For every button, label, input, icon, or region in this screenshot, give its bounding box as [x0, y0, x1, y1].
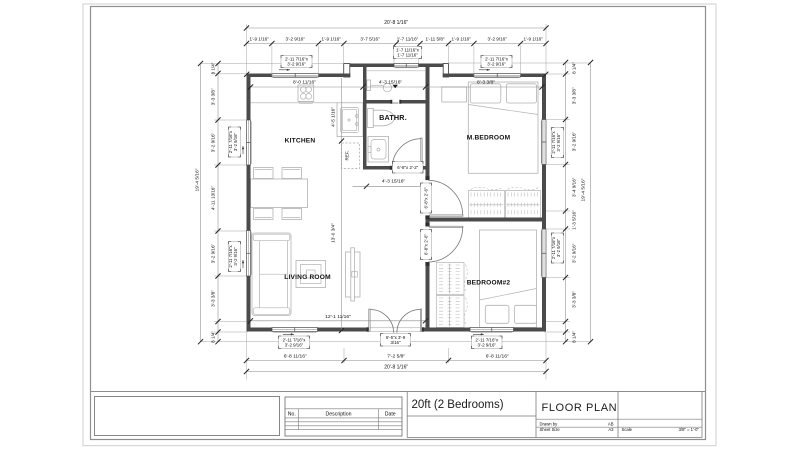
- svg-text:19'-4 5/16": 19'-4 5/16": [581, 178, 587, 201]
- svg-text:8 1/4": 8 1/4": [572, 62, 577, 74]
- svg-text:BATHR.: BATHR.: [379, 113, 407, 122]
- svg-text:A3: A3: [608, 427, 614, 432]
- svg-text:3'-3 3/8": 3'-3 3/8": [572, 87, 577, 104]
- svg-text:3'-2 9/16": 3'-2 9/16": [477, 342, 496, 347]
- svg-text:4'-3 15/16": 4'-3 15/16": [379, 79, 403, 85]
- svg-text:3'-2 9/16": 3'-2 9/16": [487, 62, 506, 67]
- svg-text:BEDROOM#2: BEDROOM#2: [467, 280, 511, 287]
- svg-text:3'-2 9/16": 3'-2 9/16": [233, 247, 238, 266]
- svg-text:8 1/4": 8 1/4": [210, 331, 215, 343]
- svg-text:4'-11 13/16": 4'-11 13/16": [210, 186, 215, 211]
- svg-text:KITCHEN: KITCHEN: [285, 138, 316, 145]
- svg-text:8'-3 3/8": 8'-3 3/8": [477, 79, 495, 85]
- svg-text:12'-1 11/16": 12'-1 11/16": [325, 314, 351, 320]
- svg-text:13'-0 3/4": 13'-0 3/4": [330, 223, 335, 243]
- svg-text:M.BEDROOM: M.BEDROOM: [467, 135, 511, 142]
- svg-text:3'-2 9/16": 3'-2 9/16": [556, 238, 561, 257]
- svg-text:3'-4 9/16": 3'-4 9/16": [572, 177, 577, 197]
- svg-text:Sheet Size: Sheet Size: [540, 427, 561, 432]
- svg-text:3'-2 9/16": 3'-2 9/16": [488, 36, 508, 41]
- svg-text:3'-2 9/16": 3'-2 9/16": [233, 132, 238, 151]
- svg-text:LIVING ROOM: LIVING ROOM: [284, 274, 331, 281]
- svg-text:Drawn by: Drawn by: [540, 422, 559, 427]
- svg-text:8'-0 11/16": 8'-0 11/16": [293, 79, 316, 85]
- svg-text:20'-8 1/16": 20'-8 1/16": [384, 20, 408, 26]
- svg-text:1'-3 5/16": 1'-3 5/16": [572, 210, 577, 230]
- svg-text:3'-2 9/16": 3'-2 9/16": [556, 133, 561, 152]
- svg-text:3/8" = 1'-0": 3/8" = 1'-0": [679, 427, 700, 432]
- svg-text:6'-8 11/16": 6'-8 11/16": [486, 354, 509, 360]
- svg-text:3'-2 9/16": 3'-2 9/16": [285, 342, 304, 347]
- svg-text:3'-3 3/8": 3'-3 3/8": [210, 290, 215, 307]
- svg-text:3'-2 9/16": 3'-2 9/16": [210, 132, 215, 152]
- svg-text:4'-5 1/16": 4'-5 1/16": [330, 107, 335, 127]
- svg-text:Description: Description: [326, 411, 352, 417]
- svg-text:Scale: Scale: [622, 427, 633, 432]
- svg-text:3'-3 3/8": 3'-3 3/8": [572, 291, 577, 308]
- svg-text:6'-8 11/16": 6'-8 11/16": [284, 354, 307, 360]
- svg-text:3'-2 9/16": 3'-2 9/16": [286, 36, 306, 41]
- svg-text:8 1/4": 8 1/4": [572, 331, 577, 343]
- svg-text:3'-3 3/8": 3'-3 3/8": [210, 88, 215, 105]
- svg-text:3'-2 9/16": 3'-2 9/16": [572, 243, 577, 263]
- svg-text:AB: AB: [608, 422, 614, 427]
- svg-text:6'-8"x 2'-6": 6'-8"x 2'-6": [424, 187, 429, 208]
- svg-text:FLOOR PLAN: FLOOR PLAN: [542, 402, 618, 414]
- svg-text:6'-8"x 2'-6": 6'-8"x 2'-6": [424, 234, 429, 255]
- svg-text:7'-2 5/8": 7'-2 5/8": [387, 354, 405, 360]
- svg-text:4'-3 15/16": 4'-3 15/16": [382, 179, 406, 185]
- svg-text:1'-11 5/8": 1'-11 5/8": [425, 36, 444, 41]
- svg-text:1'-9 1/16": 1'-9 1/16": [452, 36, 472, 41]
- svg-text:No.: No.: [288, 411, 296, 417]
- svg-text:20ft (2 Bedrooms): 20ft (2 Bedrooms): [412, 399, 504, 411]
- svg-text:3'-2 9/16": 3'-2 9/16": [572, 131, 577, 151]
- svg-text:19'-4 5/16": 19'-4 5/16": [195, 168, 201, 191]
- svg-text:3'-2 9/16": 3'-2 9/16": [287, 62, 306, 67]
- svg-text:6'-8"x 2'-2": 6'-8"x 2'-2": [397, 165, 418, 170]
- svg-text:3'-7 5/16": 3'-7 5/16": [360, 36, 380, 41]
- svg-text:1'-7 11/16": 1'-7 11/16": [397, 36, 419, 41]
- svg-text:20'-8 1/16": 20'-8 1/16": [384, 365, 408, 371]
- svg-text:8 1/4": 8 1/4": [210, 62, 215, 74]
- svg-text:1'-9 1/16": 1'-9 1/16": [322, 36, 342, 41]
- svg-text:3/16": 3/16": [390, 340, 401, 345]
- svg-text:REF.: REF.: [345, 151, 350, 161]
- svg-text:Date: Date: [385, 411, 396, 417]
- svg-text:1'-9 1/16": 1'-9 1/16": [524, 36, 544, 41]
- svg-text:1'-9 1/16": 1'-9 1/16": [250, 36, 270, 41]
- svg-text:3'-2 9/16": 3'-2 9/16": [210, 243, 215, 263]
- svg-text:1'-7 11/16": 1'-7 11/16": [397, 53, 418, 58]
